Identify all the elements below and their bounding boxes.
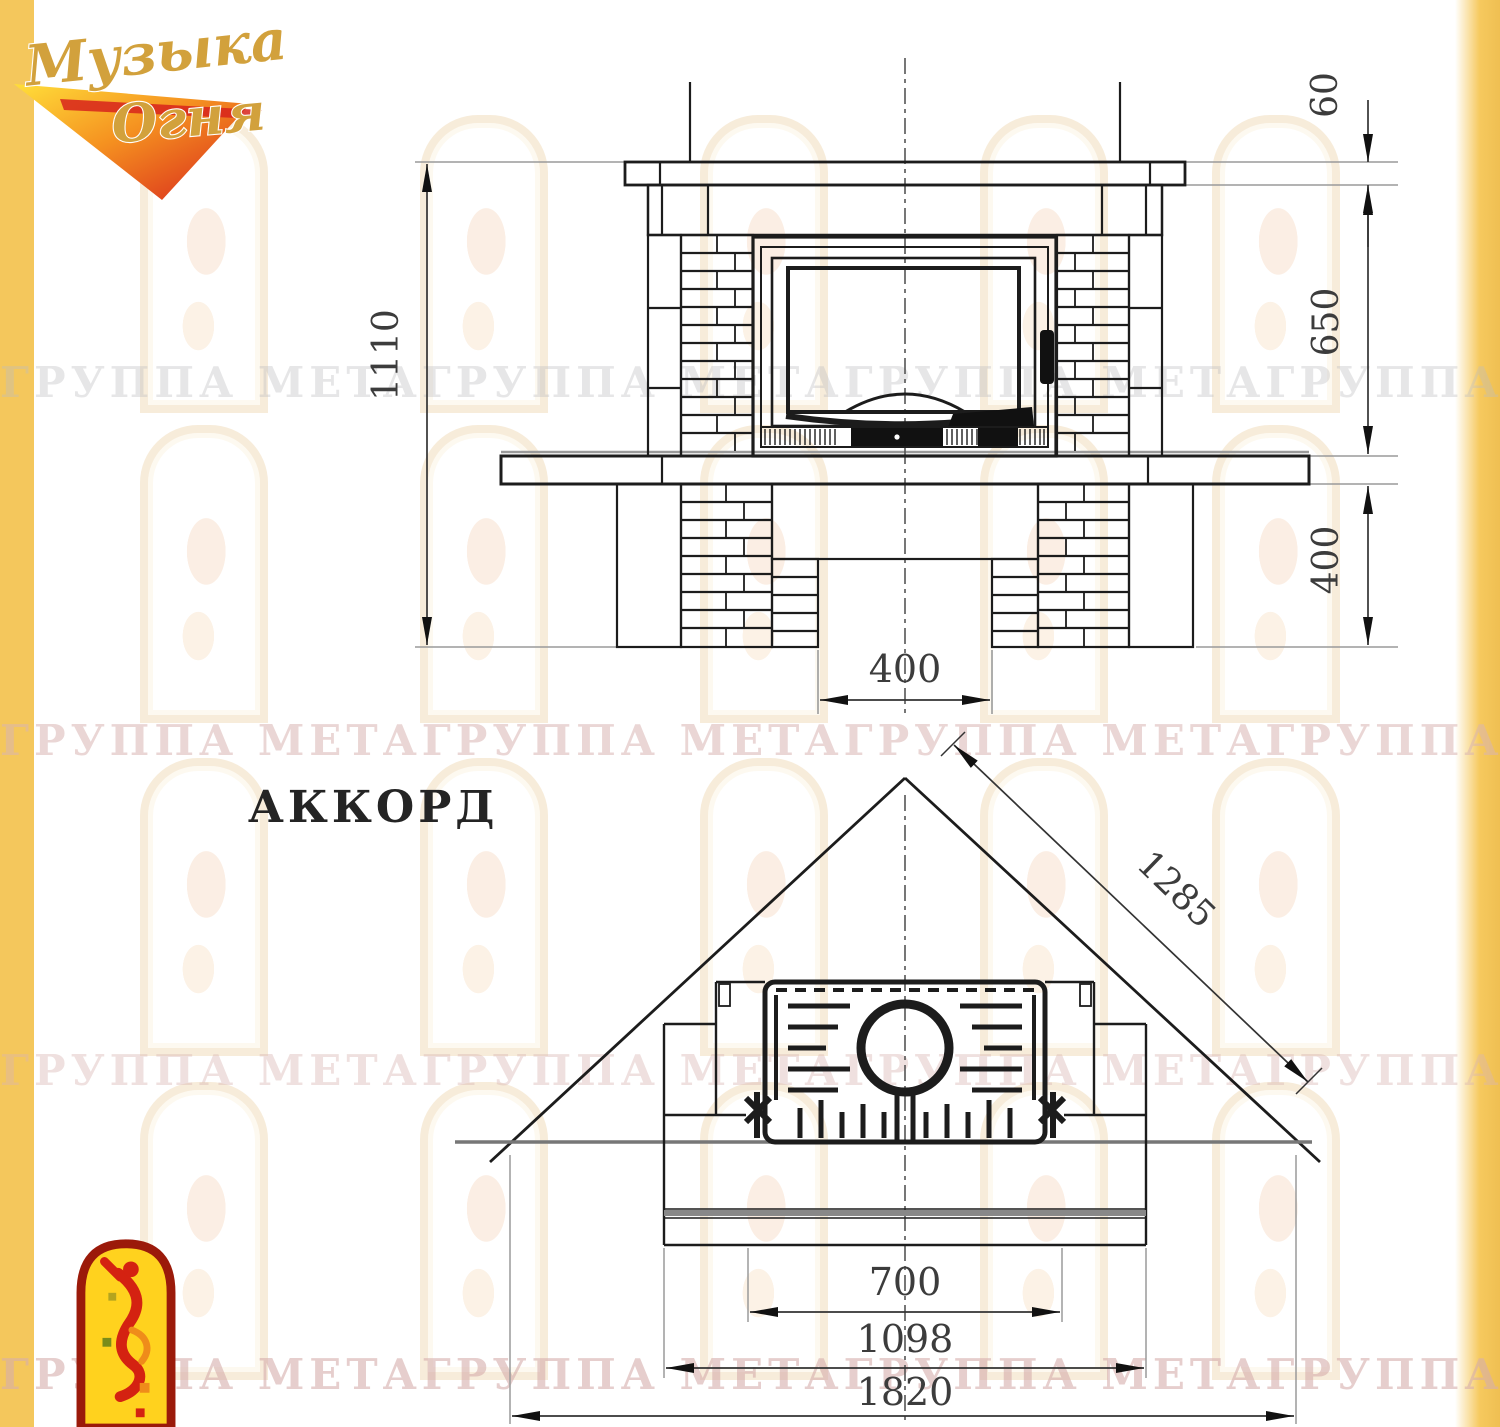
- technical-drawing: 1110 60 650 400 400: [0, 0, 1500, 1427]
- dim-opening: 700: [869, 1260, 942, 1304]
- door-handle: [1040, 330, 1054, 384]
- firebox-front: [753, 237, 1056, 456]
- front-view: [415, 58, 1398, 716]
- dim-base-zone: 400: [1306, 526, 1347, 595]
- dim-diagonal: 1285: [1129, 843, 1223, 936]
- dim-overall-width: 1820: [857, 1370, 954, 1414]
- dim-shelf-thickness: 60: [1305, 72, 1346, 118]
- front-view-dimensions: [427, 100, 1368, 700]
- dim-middle-zone: 650: [1306, 288, 1347, 357]
- page: ГРУППА МЕТАГРУППА МЕТАГРУППА МЕТАГРУППА …: [0, 0, 1500, 1427]
- dim-total-height: 1110: [366, 309, 407, 401]
- dim-bottom-opening: 400: [869, 647, 942, 691]
- dim-inner-width: 1098: [857, 1317, 954, 1361]
- fire-dancer-emblem: [74, 1236, 178, 1427]
